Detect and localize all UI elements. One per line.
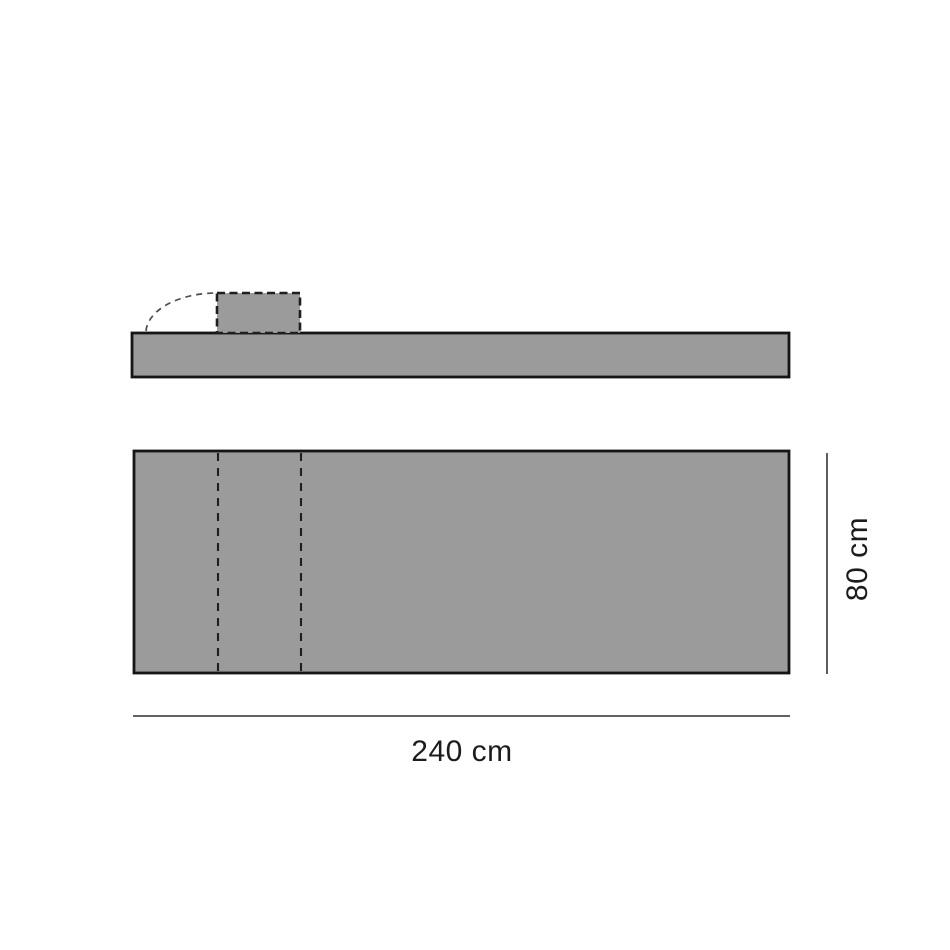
side-elevation-view xyxy=(132,293,789,377)
dimension-diagram: 80 cm 240 cm xyxy=(0,0,950,950)
flip-rotation-arc xyxy=(146,293,217,331)
depth-dimension-label: 80 cm xyxy=(841,517,874,601)
depth-dimension: 80 cm xyxy=(827,453,874,674)
top-plan-view xyxy=(134,451,789,673)
width-dimension: 240 cm xyxy=(133,716,790,768)
top-view-panel xyxy=(134,451,789,673)
flip-up-element xyxy=(217,293,300,333)
diagram-canvas: 80 cm 240 cm xyxy=(0,0,950,950)
side-view-base-panel xyxy=(132,333,789,377)
width-dimension-label: 240 cm xyxy=(411,735,512,768)
